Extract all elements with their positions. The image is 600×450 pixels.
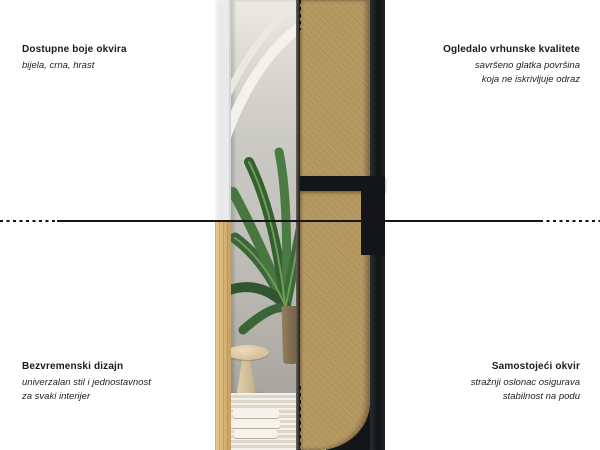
- callout-subtitle-line: stabilnost na podu: [471, 390, 580, 404]
- support-crossbar: [300, 176, 385, 191]
- folded-towel: [233, 410, 279, 418]
- wooden-stool-top: [231, 345, 269, 360]
- frame-strip-oak: [215, 221, 231, 450]
- callout-subtitle-line: za svaki interijer: [22, 390, 151, 404]
- callout-frame-colors: Dostupne boje okvira bijela, crna, hrast: [22, 44, 127, 73]
- callout-subtitle-line: savršeno glatka površina: [443, 59, 580, 73]
- stand-hinge-block: [361, 191, 385, 255]
- reflected-arch-decor: [231, 0, 300, 150]
- callout-subtitle-line: bijela, crna, hrast: [22, 59, 127, 73]
- mirror-glass-reflection: [231, 0, 300, 450]
- horizontal-guide-dotted-left: [0, 220, 57, 222]
- callout-title: Dostupne boje okvira: [22, 44, 127, 55]
- callout-subtitle-line: stražnji oslonac osigurava: [471, 376, 580, 390]
- callout-timeless-design: Bezvremenski dizajn univerzalan stil i j…: [22, 361, 151, 404]
- mdf-back-board: [300, 0, 370, 450]
- callout-subtitle-line: univerzalan stil i jednostavnost: [22, 376, 151, 390]
- callout-subtitle-line: koja ne iskrivljuje odraz: [443, 73, 580, 87]
- vertical-guide-dotted-bottom: [299, 386, 301, 450]
- folded-towel: [234, 430, 277, 438]
- vertical-guide-dotted-top: [299, 0, 301, 30]
- callout-title: Ogledalo vrhunske kvalitete: [443, 44, 580, 55]
- mirror-back-view: [300, 0, 385, 450]
- mirror-product-photo: [215, 0, 385, 450]
- callout-mirror-quality: Ogledalo vrhunske kvalitete savršeno gla…: [443, 44, 580, 87]
- frame-strip-white: [215, 0, 231, 221]
- horizontal-guide-solid: [57, 220, 540, 222]
- horizontal-guide-dotted-right: [540, 220, 600, 222]
- callout-title: Bezvremenski dizajn: [22, 361, 151, 372]
- callout-title: Samostojeći okvir: [471, 361, 580, 372]
- callout-freestanding-frame: Samostojeći okvir stražnji oslonac osigu…: [471, 361, 580, 404]
- infographic-canvas: Dostupne boje okvira bijela, crna, hrast…: [0, 0, 600, 450]
- folded-towel: [231, 420, 280, 428]
- mirror-front-view: [215, 0, 300, 450]
